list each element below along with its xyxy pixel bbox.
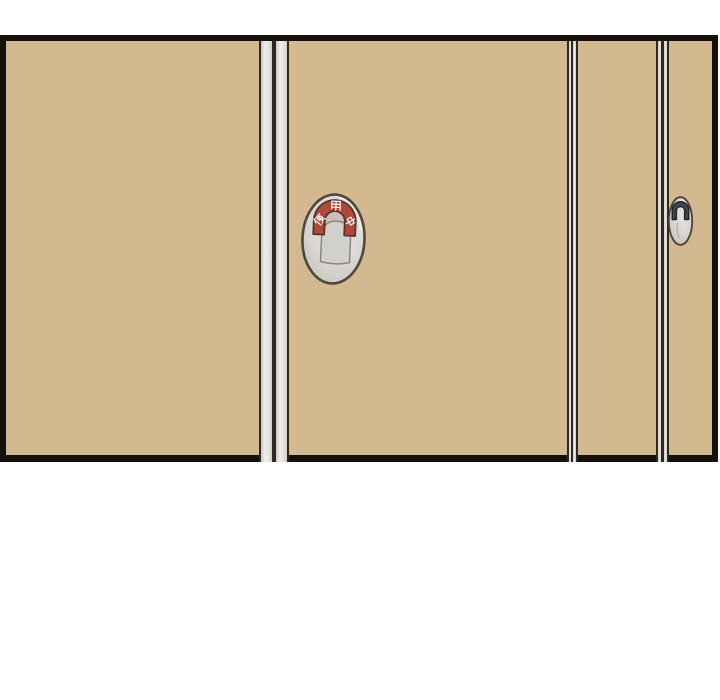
strip-line [576, 41, 578, 462]
occupied-indicator-icon [298, 191, 369, 288]
stall-door-left [6, 41, 259, 455]
comic-panel: 使用中 [0, 35, 718, 462]
partition-strip-right [656, 41, 669, 462]
stall-panel-narrow [578, 41, 657, 455]
edge-indicator-icon [667, 195, 694, 247]
strip-line [287, 41, 290, 462]
strip-face [261, 41, 272, 462]
comic-page: 使用中 [0, 0, 720, 700]
partition-strip-wide [259, 41, 290, 462]
strip-face [276, 41, 287, 462]
door-lock-indicator: 使用中 [298, 191, 369, 288]
edge-door-lock-indicator [667, 195, 694, 247]
strip-line [667, 41, 669, 462]
stall-door-right-edge [669, 41, 713, 455]
partition-strip-narrow [567, 41, 578, 462]
